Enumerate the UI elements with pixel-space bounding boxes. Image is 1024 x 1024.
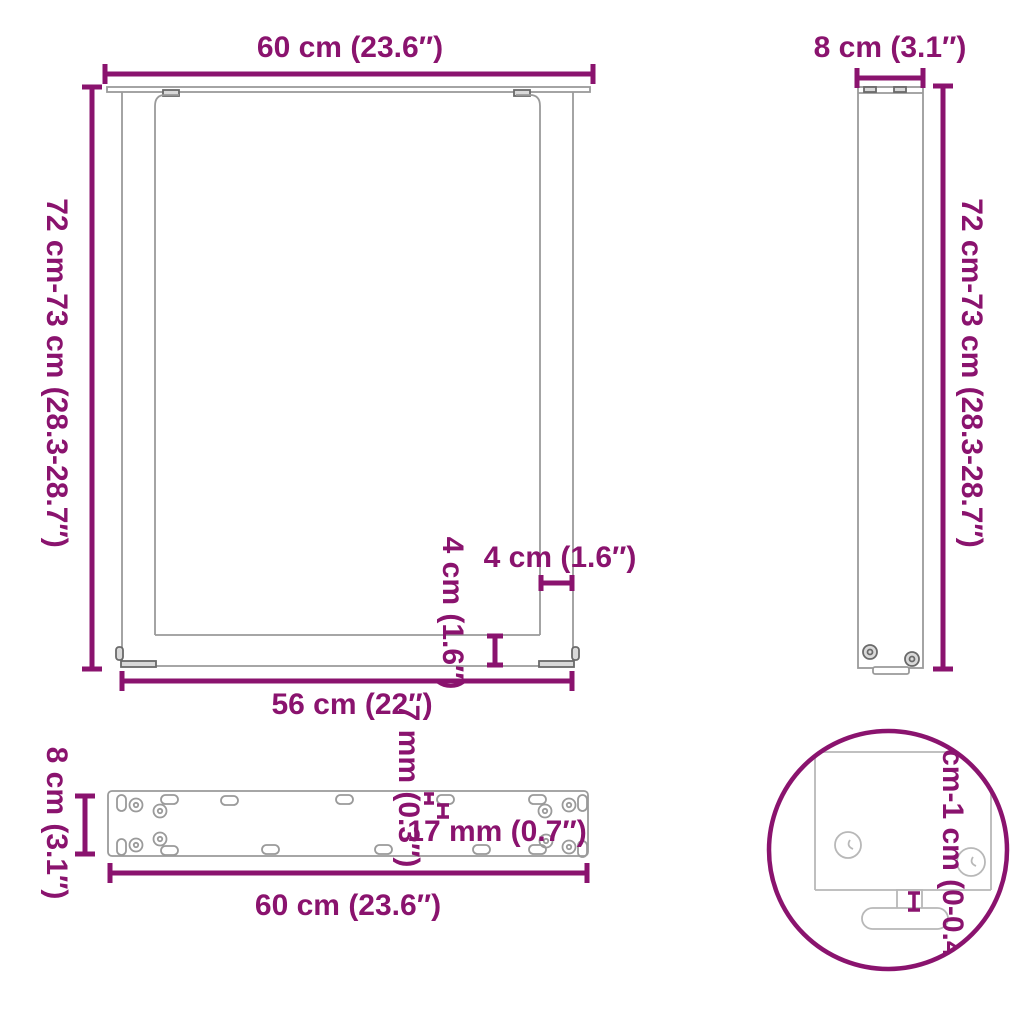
side-depth-dimension: 8 cm (3.1″) xyxy=(814,31,967,88)
detail-foot-base xyxy=(862,908,948,929)
side-view: 8 cm (3.1″) 72 cm-73 cm (28.3-28.7″) xyxy=(814,31,988,674)
front-height-label: 72 cm-73 cm (28.3-28.7″) xyxy=(40,198,73,548)
plate-length-label: 60 cm (23.6″) xyxy=(255,889,441,922)
front-view: 60 cm (23.6″) 72 cm-73 cm (28.3-28.7″) 4… xyxy=(40,31,636,721)
front-leg-thickness-label: 4 cm (1.6″) xyxy=(484,541,637,574)
detail-view: 0 cm-1 cm (0-0.4″) xyxy=(769,724,1007,982)
plate-top-view: 8 cm (3.1″) 7 mm (0.3″) 17 mm (0.7″) 60 … xyxy=(40,705,588,922)
front-left-adjuster-pin xyxy=(116,647,123,660)
side-screw-right xyxy=(905,652,919,666)
front-width-label: 60 cm (23.6″) xyxy=(257,31,443,64)
detail-screw xyxy=(835,832,861,858)
front-crossbar-label: 4 cm (1.6″) xyxy=(436,537,469,690)
front-left-foot xyxy=(121,661,156,667)
side-screw-left xyxy=(863,645,877,659)
front-right-foot xyxy=(539,661,574,667)
plate-depth-dimension: 8 cm (3.1″) xyxy=(40,747,95,900)
side-tab-right xyxy=(894,87,906,92)
side-height-label: 72 cm-73 cm (28.3-28.7″) xyxy=(955,198,988,548)
plate-slot-label: 17 mm (0.7″) xyxy=(407,815,586,848)
front-inner-width-dimension: 56 cm (22″) xyxy=(122,671,572,721)
side-foot xyxy=(873,667,909,674)
front-left-leg-inner-edge xyxy=(155,95,179,635)
front-leg-thickness-dimension: 4 cm (1.6″) xyxy=(484,541,637,591)
side-height-dimension: 72 cm-73 cm (28.3-28.7″) xyxy=(933,86,988,669)
dimension-diagram: 60 cm (23.6″) 72 cm-73 cm (28.3-28.7″) 4… xyxy=(0,0,1024,1024)
plate-depth-label: 8 cm (3.1″) xyxy=(40,747,73,900)
front-right-adjuster-pin xyxy=(572,647,579,660)
side-tab-left xyxy=(864,87,876,92)
side-leg-body xyxy=(858,87,923,668)
dimension-diagram-page: 60 cm (23.6″) 72 cm-73 cm (28.3-28.7″) 4… xyxy=(0,0,1024,1024)
detail-circle-border xyxy=(769,731,1007,969)
side-depth-label: 8 cm (3.1″) xyxy=(814,31,967,64)
front-height-dimension: 72 cm-73 cm (28.3-28.7″) xyxy=(40,87,102,669)
front-width-dimension: 60 cm (23.6″) xyxy=(105,31,593,84)
plate-length-dimension: 60 cm (23.6″) xyxy=(110,863,587,922)
